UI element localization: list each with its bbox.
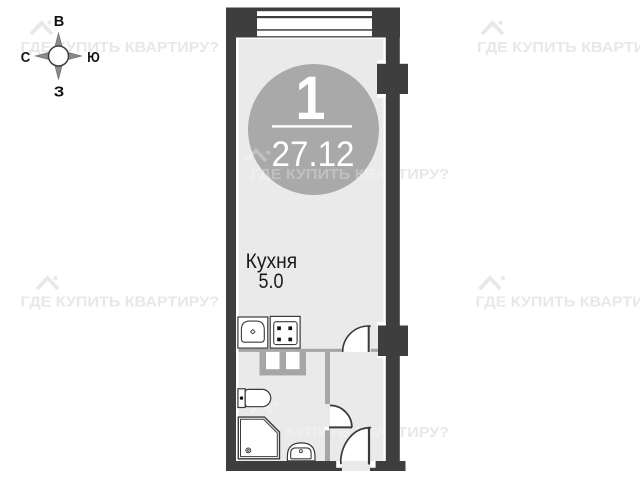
svg-text:З: З — [54, 85, 65, 101]
svg-text:С: С — [21, 50, 31, 66]
svg-text:ГДЕ КУПИТЬ КВАРТИРУ?: ГДЕ КУПИТЬ КВАРТИРУ? — [21, 295, 220, 311]
svg-text:1: 1 — [296, 64, 326, 133]
svg-text:ГДЕ КУПИТЬ КВАРТИРУ?: ГДЕ КУПИТЬ КВАРТИРУ? — [477, 40, 640, 56]
svg-text:5.0: 5.0 — [259, 269, 284, 293]
svg-text:ГДЕ КУПИТЬ КВАРТИРУ?: ГДЕ КУПИТЬ КВАРТИРУ? — [476, 295, 640, 311]
svg-text:Ю: Ю — [87, 50, 100, 66]
svg-text:В: В — [54, 14, 65, 30]
